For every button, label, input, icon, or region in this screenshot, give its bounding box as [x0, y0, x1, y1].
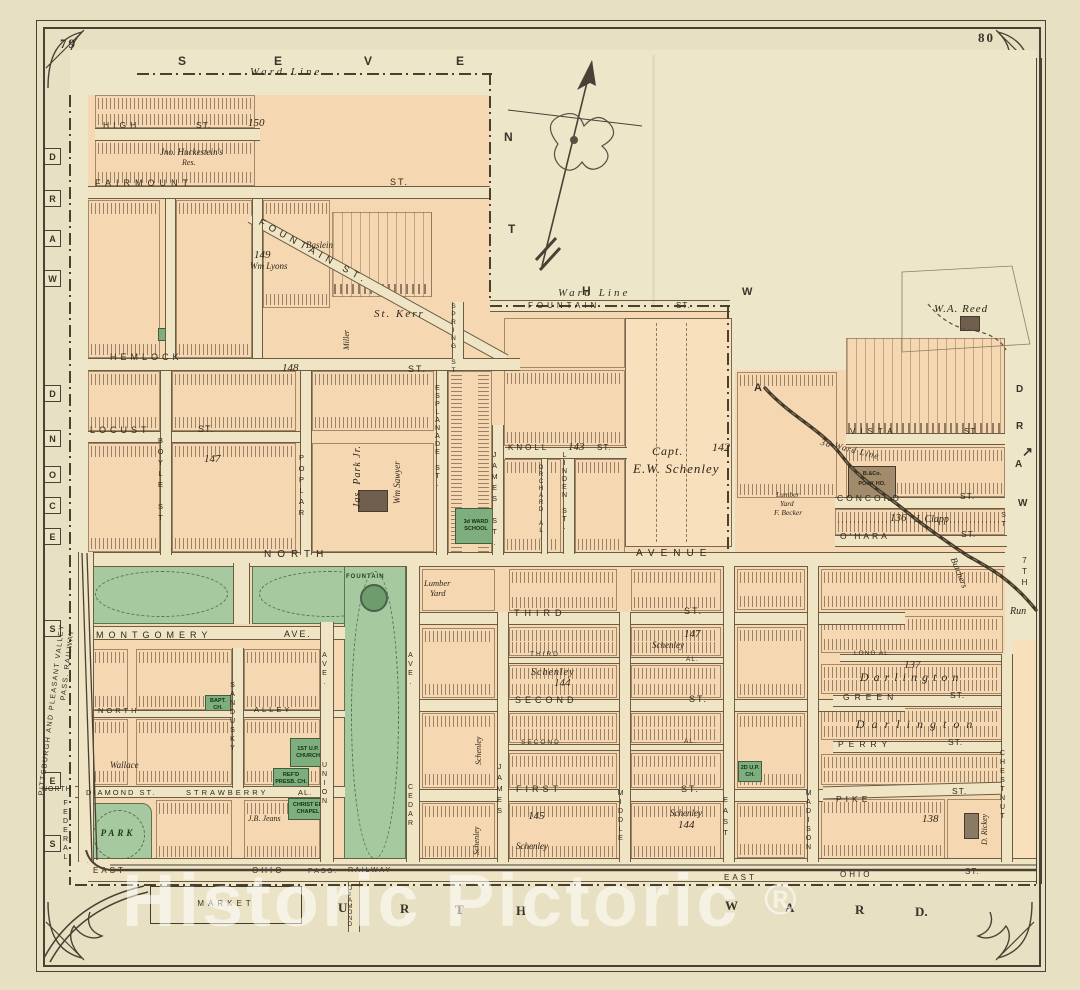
street-label-poplar: POPLAR — [297, 453, 306, 519]
city-block — [312, 371, 434, 431]
street-label-boyle: BOYLE ST — [156, 436, 165, 524]
owner-label-darlington: Darlington — [856, 717, 979, 732]
owner-label-schenley-full: E.W. Schenley — [633, 461, 720, 477]
street-label-east: EAST — [721, 795, 730, 839]
street-label-hemlock-st: ST. — [408, 364, 427, 374]
ward-letter: E — [456, 54, 464, 68]
street-label-james-north: JAMES ST. — [490, 450, 499, 549]
city-block — [136, 719, 232, 785]
street-label-green: GREEN — [843, 692, 898, 702]
owner-label-kerr: St. Kerr — [374, 308, 425, 320]
street-label-avenue: AVENUE — [636, 548, 712, 559]
street-label-fountain-east: FOUNTAIN — [528, 301, 600, 310]
plat-number-149: 149 — [254, 249, 271, 261]
street-label-strawberry: STRAWBERRY — [186, 788, 269, 797]
street-label-hemlock: HEMLOCK — [110, 352, 183, 362]
ward-letter-box: C — [44, 497, 61, 514]
city-block — [88, 443, 160, 552]
city-block — [737, 627, 805, 698]
rickey-house — [964, 813, 979, 839]
street-label-third-alley-suffix: AL. — [686, 656, 699, 663]
ward-letter: D. — [915, 904, 928, 920]
street-label-third-alley: THIRD — [530, 651, 560, 658]
stream-label-run: Run — [1010, 606, 1026, 617]
ward-letter-box: E — [44, 528, 61, 545]
ward-line-fountain — [490, 305, 730, 307]
street-label-cedar: CEDAR — [407, 784, 414, 829]
street-label-esplanade: ESPLANADE ST. — [434, 385, 441, 489]
city-block — [509, 627, 617, 656]
street-label-linden: LINDEN ST. — [561, 452, 568, 532]
plat-number-142: 142 — [712, 440, 730, 455]
street-label-orchard: ORCHARD AL. — [538, 465, 544, 542]
ward-letter: T — [508, 222, 515, 236]
street-label-first: FIRST — [516, 784, 562, 794]
street-label-strawberry-al: AL. — [298, 788, 312, 797]
street-label-north-alley: NORTH — [98, 706, 140, 715]
city-block — [88, 200, 160, 358]
ward-line-label: Ward Line — [558, 287, 630, 299]
ward-letter-box: O — [44, 466, 61, 483]
city-block — [509, 753, 617, 788]
ward-letter-box: A — [44, 230, 61, 247]
street-label-montgomery-ave: AVE. — [284, 629, 312, 639]
city-block — [509, 569, 617, 611]
ward-letter-box: W — [44, 270, 61, 287]
city-block — [504, 370, 625, 446]
registered-mark: ® — [764, 875, 799, 924]
street-label-chestnut: CHESTNUT — [999, 750, 1006, 822]
ward-letter: W — [742, 286, 752, 298]
page-number-right: 80 — [978, 30, 995, 46]
place-label-fountain: FOUNTAIN — [346, 574, 385, 580]
district-chestnut-east — [1013, 640, 1036, 862]
small-church: 2D U.P. CH. — [738, 761, 762, 782]
city-block — [422, 713, 495, 788]
street-label-long-alley: LONG AL. — [854, 650, 892, 657]
street-label-montgomery: MONTGOMERY — [96, 630, 212, 640]
street-label-pike: PIKE — [836, 794, 871, 804]
ward-letter-box: R — [44, 190, 61, 207]
pleasant-valley-railway-track — [70, 545, 110, 865]
street-label-spring: SPRING ST — [450, 303, 457, 375]
city-block — [504, 459, 561, 553]
plat-number-143: 143 — [568, 441, 585, 453]
place-label-park: PARK — [98, 828, 138, 838]
street-label-high-st: ST. — [196, 120, 211, 130]
owner-label-rickey: D. Rickey — [980, 814, 989, 845]
city-block — [172, 443, 296, 552]
street-label-locust: LOCUST — [90, 425, 151, 435]
city-block — [504, 318, 625, 368]
street-label-locust-st: ST. — [198, 424, 214, 434]
city-block — [575, 459, 625, 553]
street-label-madison: MADISON — [805, 790, 812, 853]
fountain-basin — [360, 584, 388, 612]
street-label-alley: ALLEY — [254, 705, 292, 714]
owner-label-huckestein-res: Res. — [182, 158, 196, 167]
plat-number-138: 138 — [922, 813, 939, 825]
ward-line-east — [727, 307, 729, 553]
owner-label-reed: W.A. Reed — [934, 303, 988, 315]
plat-number-150: 150 — [248, 117, 265, 129]
owner-label-sawyer: Wm Sawyer — [392, 461, 402, 504]
ward-letter-box: S — [44, 835, 61, 852]
city-block — [631, 753, 721, 788]
owner-label-schenley: Schenley — [652, 640, 684, 650]
ward-letter: S — [178, 54, 186, 68]
owner-label-darlington: Darlington — [860, 670, 963, 685]
street-label-middle: MIDDLE — [617, 790, 624, 844]
atlas-page: { "page": {"left_no":"79","right_no":"80… — [0, 0, 1080, 990]
street-label-fairmount: FAIRMOUNT — [95, 178, 193, 188]
street-label-fountain-east-st: ST. — [676, 301, 691, 310]
street-label-cedar-ave: AVE. — [407, 652, 414, 688]
plat-number-148: 148 — [282, 362, 299, 374]
owner-label-baslein: Baslein — [306, 240, 333, 250]
street-label-high: HIGH — [103, 120, 140, 130]
street-label-diamond: DIAMOND ST. — [86, 788, 156, 797]
city-block — [88, 371, 160, 431]
city-block — [631, 713, 721, 743]
street-unnamed-nw — [165, 199, 176, 358]
ward-letter-box: D — [44, 148, 61, 165]
city-block — [244, 649, 320, 710]
street-label-north-avenue: NORTH — [264, 549, 329, 560]
street-park-gap — [233, 563, 250, 624]
street-label-first-st: ST. — [681, 784, 700, 794]
street-label-second-alley-suffix: AL. — [684, 738, 697, 745]
street-label-third: THIRD — [514, 608, 567, 618]
watermark: Historic Pictoric ® — [122, 858, 800, 943]
compass-north-arrow — [500, 48, 650, 278]
plat-number-147: 147 — [684, 628, 701, 640]
butchers-run-stream — [740, 368, 1040, 618]
street-label-perry-st: ST. — [948, 737, 963, 747]
place-label-lumber-yard: Lumber — [424, 578, 450, 588]
owner-label-schenley: Schenley — [670, 808, 702, 818]
plat-number-147: 147 — [204, 453, 221, 465]
street-label-fairmount-st: ST. — [390, 177, 409, 187]
city-block — [422, 628, 495, 698]
page-fold-crease — [652, 55, 655, 310]
owner-label-miller: Miller — [342, 330, 351, 350]
plat-number-144: 144 — [678, 819, 695, 831]
street-label-james-south: JAMES — [495, 762, 504, 817]
parcel-line — [656, 323, 657, 542]
street-label-north-diamond: NORTH — [42, 786, 72, 793]
owner-label-lyons: Wm Lyons — [250, 261, 287, 271]
ward-letter-box: D — [44, 385, 61, 402]
street-james-south — [497, 612, 509, 862]
owner-label-wallace: Wallace — [110, 760, 139, 770]
plat-number-145: 145 — [528, 810, 545, 822]
city-block — [176, 200, 252, 358]
street-label-union-ave: AVE. — [321, 652, 328, 688]
ward-letter: R — [855, 902, 864, 918]
street-label-second-st: ST. — [689, 694, 708, 704]
owner-label-jeans: J.B. Jeans — [248, 814, 281, 823]
ward-letter: V — [364, 54, 372, 68]
ward-letter-box: N — [44, 430, 61, 447]
street-label-perry: PERRY — [838, 739, 892, 749]
owner-label-schenley-capt: Capt. — [652, 444, 683, 459]
street-label-second-alley: SECOND — [521, 739, 561, 746]
parcel-line — [686, 323, 687, 542]
ward-line-notch — [489, 73, 491, 303]
street-label-second: SECOND — [515, 695, 578, 705]
ward-letter: N — [504, 130, 513, 144]
owner-label-huckestein: Jno. Huckestein's — [160, 147, 223, 157]
city-block — [821, 754, 1003, 785]
city-block — [172, 371, 296, 431]
corner-ornament — [972, 898, 1036, 962]
street-label-knoll: KNOLL — [508, 443, 549, 452]
street-label-knoll-st: ST. — [597, 443, 612, 452]
street-label-green-st: ST. — [950, 690, 965, 700]
place-label-lumber-yard: Yard — [430, 588, 445, 598]
plat-number-144: 144 — [554, 677, 571, 689]
street-label-sandusky: SANDUSKY — [229, 682, 236, 754]
schenley-parcel — [625, 318, 732, 547]
owner-label-schenley: Schenley — [474, 737, 483, 765]
city-block — [631, 569, 721, 611]
street-label-third-st: ST. — [684, 606, 703, 616]
ward-line-label: Ward Line — [250, 66, 322, 78]
owner-label-park-jr: Jas. Park Jr. — [352, 445, 363, 508]
street-label-pike-st: ST. — [952, 786, 967, 796]
commons-park-west — [88, 564, 235, 624]
street-label-federal: FEDERAL — [62, 800, 69, 863]
street-label-union: UNION — [321, 762, 328, 807]
